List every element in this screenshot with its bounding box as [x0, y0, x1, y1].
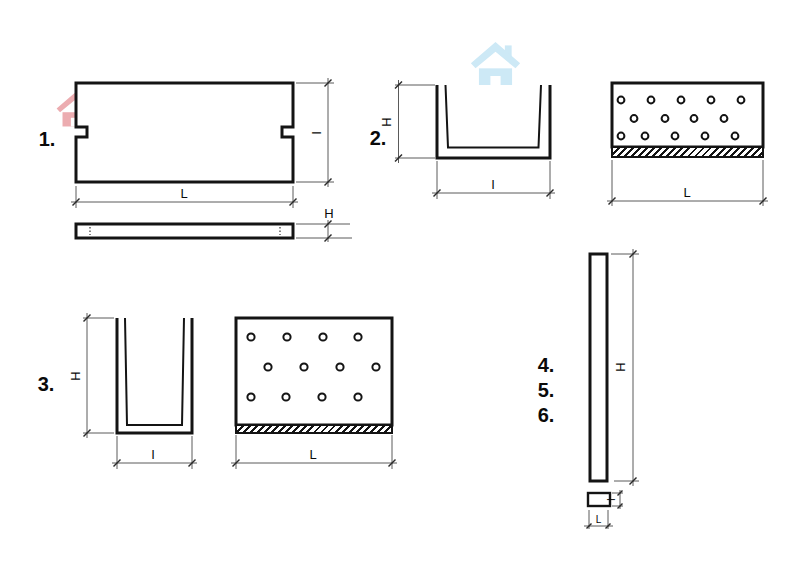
hole — [642, 133, 649, 140]
dim-label-length: L — [683, 185, 690, 200]
hole — [618, 97, 625, 104]
fig3-width-dimension: I — [112, 436, 197, 469]
house-icon-roof — [471, 42, 520, 68]
fig2-width-dimension: I — [432, 161, 555, 199]
dim-label-width: I — [309, 131, 324, 135]
item-number-3: 3. — [38, 373, 55, 395]
hole — [354, 393, 361, 400]
fig456-bar-outline — [590, 254, 607, 481]
fig3-channel-outline — [117, 318, 192, 433]
technical-drawing-sheet: 1. I L H — [0, 0, 800, 588]
item-number-4: 4. — [538, 354, 555, 376]
fig1-width-dimension: I — [296, 78, 334, 187]
hole — [618, 133, 625, 140]
hole — [264, 363, 271, 370]
hole — [702, 133, 709, 140]
hole — [282, 393, 289, 400]
hole — [247, 393, 254, 400]
hole — [691, 115, 698, 122]
dim-label-width: I — [491, 177, 495, 192]
hole — [631, 115, 638, 122]
dim-label-length: L — [309, 447, 316, 462]
fig1-length-dimension: L — [71, 186, 298, 208]
hole — [648, 97, 655, 104]
hole — [283, 333, 290, 340]
fig1-thickness-dimension: H — [296, 206, 352, 242]
hole — [318, 393, 325, 400]
fig456-width-dimension: L — [584, 510, 613, 529]
dim-label-length: L — [180, 186, 187, 201]
item-number-6: 6. — [538, 404, 555, 426]
item-number-5: 5. — [538, 379, 555, 401]
drawing-canvas: 1. I L H — [0, 0, 800, 588]
item-number-2: 2. — [370, 127, 387, 149]
hole — [247, 333, 254, 340]
hole — [678, 97, 685, 104]
fig2-length-dimension: L — [607, 160, 768, 206]
dim-label-width: L — [596, 514, 602, 525]
fig2-hatched-strip — [611, 146, 764, 158]
house-watermark-blue-top — [471, 42, 520, 88]
fig3-front-outline — [236, 318, 392, 425]
dim-label-height: H — [613, 362, 628, 371]
dim-label-height: H — [68, 371, 83, 380]
fig1-side-outline — [76, 224, 293, 238]
hole — [738, 97, 745, 104]
dim-label-depth: I — [606, 498, 617, 501]
fig3-height-dimension: H — [68, 313, 114, 438]
fig3-hatched-strip — [235, 424, 393, 434]
fig2-height-dimension: H — [379, 80, 435, 163]
hole — [319, 333, 326, 340]
fig3-length-dimension: L — [231, 435, 397, 469]
hole — [372, 363, 379, 370]
fig456-height-dimension: H — [611, 249, 639, 486]
hole — [300, 363, 307, 370]
hole — [354, 333, 361, 340]
dim-label-width: I — [151, 447, 155, 462]
hole — [672, 133, 679, 140]
item-number-1: 1. — [39, 128, 56, 150]
hole — [336, 363, 343, 370]
dim-label-height: H — [379, 117, 394, 126]
hole — [662, 115, 669, 122]
hole — [708, 97, 715, 104]
hole — [732, 133, 739, 140]
dim-label-thickness: H — [324, 206, 333, 221]
fig1-plan-outline — [76, 83, 293, 182]
hole — [721, 115, 728, 122]
